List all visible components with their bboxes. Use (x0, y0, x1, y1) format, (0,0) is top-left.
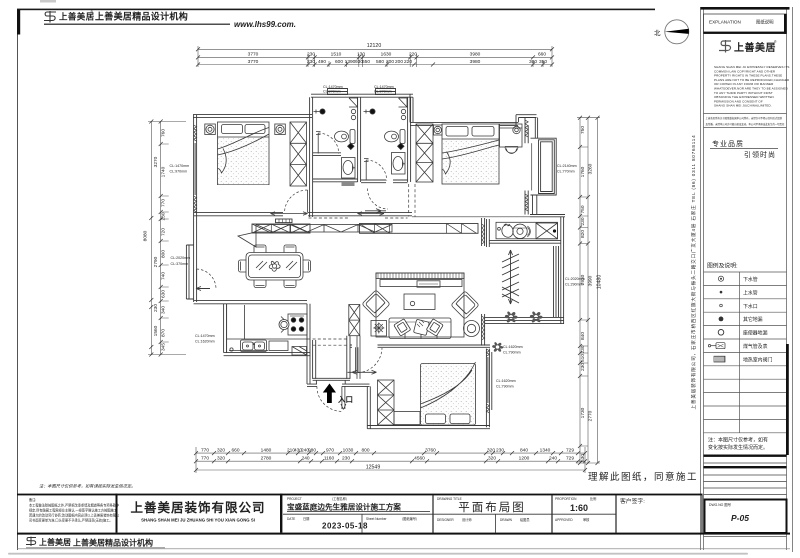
svg-text:230: 230 (307, 59, 315, 65)
svg-text:平面布局图: 平面布局图 (458, 501, 526, 514)
svg-text:APPROVED: APPROVED (555, 518, 573, 522)
svg-text:770: 770 (161, 199, 167, 207)
svg-text:绘图员: 绘图员 (520, 517, 530, 522)
svg-text:引领时尚: 引领时尚 (744, 150, 776, 159)
svg-text:840: 840 (580, 332, 586, 340)
svg-text:1:60: 1:60 (570, 503, 588, 513)
svg-text:230: 230 (153, 304, 159, 312)
svg-text:上善美居: 上善美居 (59, 12, 95, 22)
svg-text:（工程名称）: （工程名称） (330, 496, 349, 501)
svg-text:320: 320 (217, 448, 225, 454)
svg-text:1340: 1340 (540, 448, 551, 454)
svg-text:220: 220 (409, 52, 417, 58)
svg-text:800: 800 (161, 250, 167, 258)
svg-text:1630: 1630 (381, 52, 392, 58)
svg-text:660: 660 (538, 52, 546, 58)
svg-text:345: 345 (161, 343, 167, 351)
svg-text:座便器地漏: 座便器地漏 (743, 330, 768, 337)
svg-text:DESIGNER: DESIGNER (437, 518, 454, 522)
svg-text:CL:1470mm: CL:1470mm (170, 164, 190, 168)
svg-text:230: 230 (580, 217, 586, 225)
svg-text:1030: 1030 (343, 448, 354, 454)
svg-text:2790: 2790 (153, 256, 159, 267)
svg-text:230: 230 (161, 212, 167, 220)
svg-text:其它地漏: 其它地漏 (743, 316, 763, 323)
svg-text:980: 980 (308, 448, 316, 454)
svg-text:CL:970mm: CL:970mm (374, 90, 392, 94)
svg-text:®: ® (774, 40, 777, 44)
svg-text:600: 600 (335, 59, 343, 65)
svg-text:220: 220 (404, 59, 412, 65)
svg-text:设计师: 设计师 (462, 517, 472, 522)
svg-text:DRAWING TITLE: DRAWING TITLE (437, 497, 462, 501)
svg-text:SHANG SHAN MEI JU(CHINA)LIMITE: SHANG SHAN MEI JU(CHINA)LIMITED. (714, 104, 772, 108)
svg-text:日期: 日期 (303, 516, 309, 521)
svg-text:上善美居精品设计机构: 上善美居精品设计机构 (95, 11, 188, 22)
svg-text:P-05: P-05 (731, 513, 749, 523)
svg-text:若遇大的改动另行协商;改动图纸内容必须以上善美居装饰有限公: 若遇大的改动另行协商;改动图纸内容必须以上善美居装饰有限公 (29, 513, 120, 518)
svg-text:729: 729 (566, 448, 574, 454)
svg-text:CL:790mm: CL:790mm (503, 351, 521, 355)
svg-text:CL:770mm: CL:770mm (557, 170, 575, 174)
svg-text:3260: 3260 (588, 163, 594, 174)
svg-text:1510: 1510 (331, 52, 342, 58)
svg-text:CL:2140mm: CL:2140mm (557, 164, 577, 168)
svg-text:PROJECT: PROJECT (287, 497, 302, 501)
svg-text:DATE: DATE (287, 517, 295, 521)
svg-text:北: 北 (654, 29, 661, 37)
svg-text:750: 750 (580, 205, 586, 213)
svg-text:PROPORTION: PROPORTION (555, 497, 577, 501)
svg-text:530: 530 (580, 454, 586, 462)
svg-text:煤气管及表: 煤气管及表 (743, 343, 768, 350)
svg-text:DRAWN: DRAWN (500, 518, 513, 522)
svg-text:750: 750 (580, 126, 586, 134)
svg-text:720: 720 (161, 228, 167, 236)
svg-text:CL:2020mm: CL:2020mm (565, 277, 585, 281)
svg-text:770: 770 (201, 448, 209, 454)
svg-text:1730: 1730 (580, 407, 586, 418)
svg-text:上善美居装饰有限公司，石家庄市桥西区红旗大街与振头二路交口广: 上善美居装饰有限公司，石家庄市桥西区红旗大街与振头二路交口广友大厦4层 石家庄 … (690, 135, 697, 410)
svg-text:490: 490 (318, 59, 326, 65)
svg-text:CL:290mm: CL:290mm (565, 283, 583, 287)
svg-text:3770: 3770 (248, 52, 259, 58)
svg-text:CL:1470mm: CL:1470mm (374, 85, 394, 89)
svg-text:10480: 10480 (597, 275, 603, 290)
svg-text:4560: 4560 (414, 456, 425, 462)
svg-text:CL:370mm: CL:370mm (171, 262, 189, 266)
svg-text:客户签字:: 客户签字: (620, 497, 645, 505)
svg-text:820: 820 (580, 230, 586, 238)
svg-text:（图纸编号）: （图纸编号） (400, 516, 419, 521)
svg-text:1160: 1160 (324, 456, 335, 462)
svg-text:CL:2020mm: CL:2020mm (171, 256, 191, 260)
svg-text:下水口: 下水口 (743, 303, 758, 310)
svg-text:CL:970mm: CL:970mm (170, 170, 188, 174)
svg-text:3980: 3980 (470, 59, 481, 65)
svg-text:1740: 1740 (161, 166, 167, 177)
svg-text:12549: 12549 (366, 464, 381, 470)
svg-text:230: 230 (580, 363, 586, 371)
svg-text:理解此图纸，同意施工: 理解此图纸，同意施工 (588, 471, 698, 483)
svg-text:CL:1620mm: CL:1620mm (496, 379, 516, 383)
svg-text:图例及说明:: 图例及说明: (707, 262, 738, 270)
svg-text:CL:970mm: CL:970mm (323, 90, 341, 94)
svg-text:上善美居精品设计机构: 上善美居精品设计机构 (73, 538, 153, 548)
svg-text:230: 230 (307, 52, 315, 58)
svg-text:上善美居: 上善美居 (39, 537, 71, 547)
svg-text:630: 630 (161, 290, 167, 298)
svg-text:上水管: 上水管 (743, 289, 758, 296)
svg-text:下水管: 下水管 (743, 276, 758, 283)
svg-text:2023-05-18: 2023-05-18 (322, 522, 368, 531)
svg-text:®: ® (91, 10, 94, 14)
svg-text:230: 230 (496, 448, 504, 454)
svg-text:1200: 1200 (519, 456, 530, 462)
svg-text:入口: 入口 (337, 395, 353, 404)
svg-text:130: 130 (357, 52, 365, 58)
svg-text:3990: 3990 (588, 275, 594, 286)
svg-text:EXPLANATION: EXPLANATION (709, 20, 741, 25)
svg-text:320: 320 (487, 448, 495, 454)
svg-text:729: 729 (566, 456, 574, 462)
svg-text:注：本图尺寸仅参考，如有: 注：本图尺寸仅参考，如有 (708, 437, 768, 444)
svg-text:970: 970 (326, 448, 334, 454)
svg-text:上善美居: 上善美居 (734, 41, 776, 54)
svg-text:240: 240 (302, 456, 310, 462)
svg-text:本工程做法除按图纸之外,严禁拆改承重墙及烟道等各专项条款中: 本工程做法除按图纸之外,严禁拆改承重墙及烟道等各专项条款中 (29, 503, 119, 508)
svg-text:230: 230 (580, 345, 586, 353)
svg-text:580: 580 (376, 59, 384, 65)
svg-text:2770: 2770 (588, 410, 594, 421)
svg-text:12120: 12120 (367, 43, 382, 49)
svg-text:1480: 1480 (261, 448, 272, 454)
svg-text:上善美居装饰有限公司: 上善美居装饰有限公司 (130, 500, 265, 515)
svg-text:SHANG SHAN MEI JU ZHUANG SHI Y: SHANG SHAN MEI JU ZHUANG SHI YOU XIAN GO… (141, 518, 255, 523)
svg-text:CL:790mm: CL:790mm (496, 385, 514, 389)
svg-text:Sheet Number: Sheet Number (366, 517, 387, 521)
svg-text:变化按实际发生情况而定。: 变化按实际发生情况而定。 (708, 444, 768, 451)
svg-text:备注:: 备注: (29, 497, 36, 502)
svg-text:770: 770 (201, 456, 209, 462)
svg-text:3270: 3270 (153, 156, 159, 167)
svg-text:审核: 审核 (583, 517, 590, 522)
svg-text:840: 840 (520, 448, 528, 454)
svg-text:1760: 1760 (580, 166, 586, 177)
svg-text:3770: 3770 (248, 59, 259, 65)
svg-text:规定,所有隐蔽工程需经业主确认,一经签字确认施工方按图施工,: 规定,所有隐蔽工程需经业主确认,一经签字确认施工方按图施工, (29, 508, 118, 513)
svg-text:3980: 3980 (470, 52, 481, 58)
svg-text:200: 200 (386, 59, 394, 65)
svg-text:比例: 比例 (590, 496, 596, 501)
svg-text:740: 740 (161, 272, 167, 280)
svg-text:240: 240 (549, 456, 557, 462)
svg-text:3760: 3760 (425, 448, 436, 454)
svg-text:司书面变更单为准,口头变更不予承认,严禁违章(无效)施工。: 司书面变更单为准,口头变更不予承认,严禁违章(无效)施工。 (29, 518, 113, 523)
svg-text:350: 350 (539, 59, 547, 65)
svg-text:CL:1470mm: CL:1470mm (323, 85, 343, 89)
svg-text:340: 340 (161, 306, 167, 314)
svg-text:800: 800 (361, 448, 369, 454)
svg-text:及传播。未经本公司许可擅自修改变动，本公司不承担由此发生的一: 及传播。未经本公司许可擅自修改变动，本公司不承担由此发生的一切责任 (706, 122, 786, 126)
svg-text:300: 300 (529, 59, 537, 65)
svg-text:1560: 1560 (153, 325, 159, 336)
svg-text:8080: 8080 (143, 230, 149, 241)
svg-text:图纸说明: 图纸说明 (756, 19, 774, 26)
svg-text:320: 320 (488, 456, 496, 462)
svg-text:专业品质: 专业品质 (712, 139, 744, 148)
svg-text:510: 510 (580, 354, 586, 362)
svg-text:660: 660 (231, 448, 239, 454)
svg-text:200: 200 (395, 59, 403, 65)
svg-text:CL:1620mm: CL:1620mm (195, 340, 215, 344)
svg-text:地热室内阀门: 地热室内阀门 (743, 356, 772, 363)
svg-text:870: 870 (161, 329, 167, 337)
svg-text:CL:1620mm: CL:1620mm (503, 345, 523, 349)
svg-text:www.lhs99.com.: www.lhs99.com. (234, 20, 296, 29)
svg-text:2780: 2780 (261, 456, 272, 462)
svg-text:注：本图尺寸仅供参考，如有误按实际发生情况定。: 注：本图尺寸仅供参考，如有误按实际发生情况定。 (39, 484, 135, 489)
svg-text:宝盛蓝庭边先生雅居设计施工方案: 宝盛蓝庭边先生雅居设计施工方案 (287, 502, 401, 512)
svg-text:230: 230 (342, 456, 350, 462)
svg-text:760: 760 (161, 129, 167, 137)
svg-text:CL:1470mm: CL:1470mm (195, 334, 215, 338)
svg-text:650: 650 (362, 59, 370, 65)
svg-text:上善美居所有关于图纸版权属本公司所有，未经许可不得以任何形式: 上善美居所有关于图纸版权属本公司所有，未经许可不得以任何形式复制 (706, 116, 783, 120)
svg-text:320: 320 (217, 456, 225, 462)
svg-text:DWG.NO 图号: DWG.NO 图号 (709, 502, 732, 507)
